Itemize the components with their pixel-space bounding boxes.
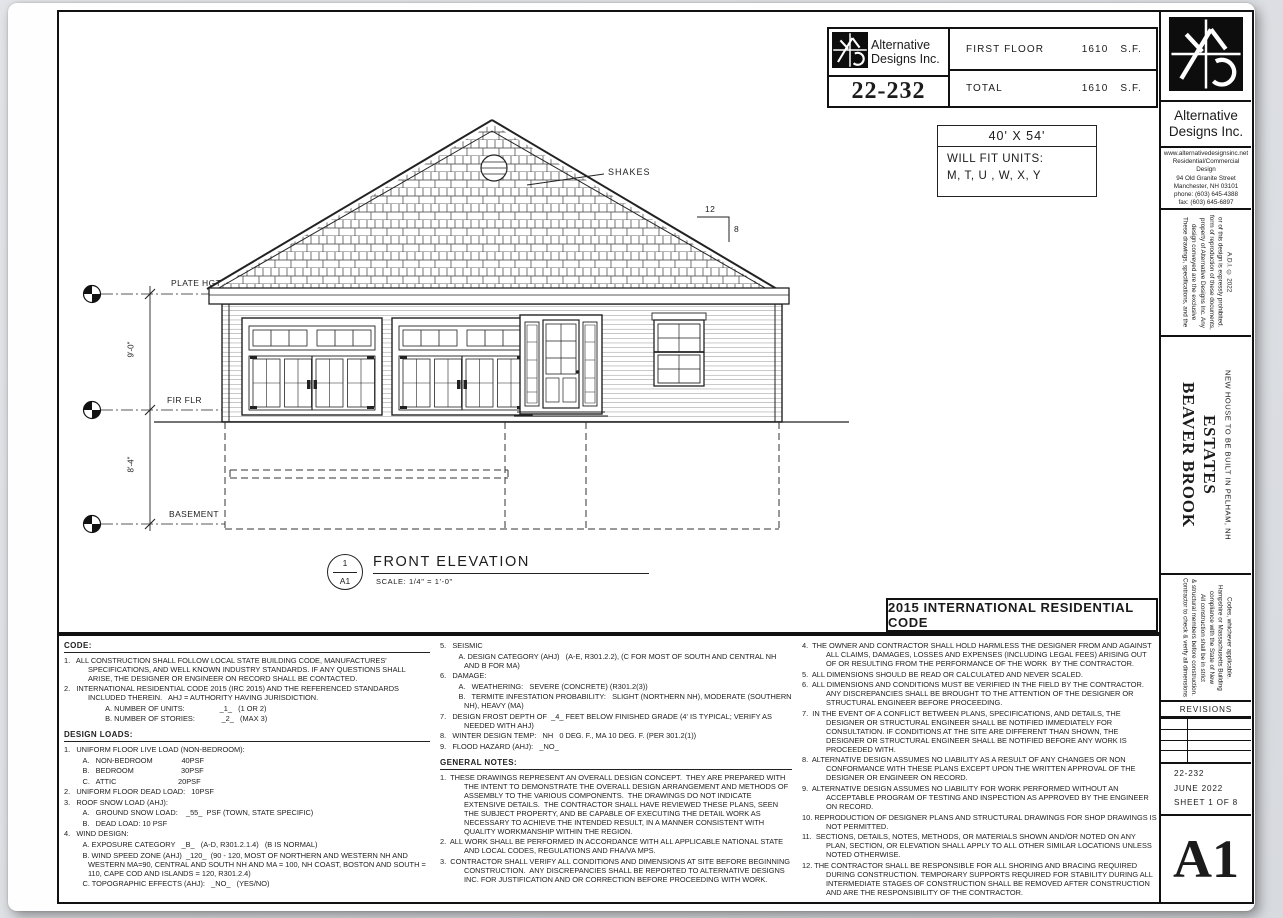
notes-column-3: 4. THE OWNER AND CONTRACTOR SHALL HOLD H… — [802, 641, 1157, 900]
datum-symbol-basement — [84, 516, 101, 533]
note-line: A. NUMBER OF UNITS: _1_ (1 OR 2) — [64, 704, 430, 713]
area-row-label: TOTAL — [966, 83, 1003, 94]
fit-units-size: 40' X 54' — [938, 126, 1096, 147]
datum-symbol-plate — [84, 286, 101, 303]
note-line: A. NON-BEDROOM 40PSF — [64, 756, 430, 765]
view-reference-bubble: 1 A1 — [327, 554, 363, 590]
garage-door-left — [242, 318, 382, 415]
title-block: Alternative Designs Inc. 22-232 FIRST FL… — [827, 27, 1158, 108]
notes-separator — [59, 632, 1159, 636]
pitch-symbol — [697, 217, 729, 242]
note-line: 8. ALTERNATIVE DESIGN ASSUMES NO LIABILI… — [802, 755, 1157, 782]
note-line: 11. SECTIONS, DETAILS, NOTES, METHODS, O… — [802, 832, 1157, 859]
project-title: BEAVER BROOK ESTATES — [1178, 340, 1221, 570]
note-line: A. WEATHERING: SEVERE (CONCRETE) (R301.2… — [440, 682, 792, 691]
revision-cell — [1188, 751, 1251, 762]
title-block-brand-cell: Alternative Designs Inc. 22-232 — [829, 29, 950, 106]
revision-cell — [1188, 741, 1251, 752]
view-title: FRONT ELEVATION — [373, 554, 649, 574]
company-info-line: www.alternativedesignsinc.net — [1161, 150, 1251, 158]
stamp-line: 22-232 — [1174, 767, 1238, 781]
code-items-continued: 5. SEISMIC A. DESIGN CATEGORY (AHJ) (A-E… — [440, 641, 792, 751]
note-line: 1. ALL CONSTRUCTION SHALL FOLLOW LOCAL S… — [64, 656, 430, 683]
note-line: A. DESIGN CATEGORY (AHJ) (A-E, R301.2.2)… — [440, 652, 792, 670]
design-loads-heading: DESIGN LOADS: — [64, 730, 430, 742]
note-line: 4. THE OWNER AND CONTRACTOR SHALL HOLD H… — [802, 641, 1157, 668]
design-loads-items: 1. UNIFORM FLOOR LIVE LOAD (NON-BEDROOM)… — [64, 745, 430, 888]
note-line: 10. REPRODUCTION OF DESIGNER PLANS AND S… — [802, 813, 1157, 831]
sidebar-project-title-cell: BEAVER BROOK ESTATES NEW HOUSE TO BE BUI… — [1161, 337, 1251, 575]
title-block-project-number: 22-232 — [829, 75, 948, 106]
revisions-table — [1161, 718, 1251, 764]
shakes-label: SHAKES — [608, 167, 651, 177]
notes-column-1: CODE: 1. ALL CONSTRUCTION SHALL FOLLOW L… — [64, 641, 430, 900]
basement-label: BASEMENT — [169, 509, 219, 519]
gable-vent — [481, 155, 507, 181]
note-line: 5. ALL DIMENSIONS SHOULD BE READ OR CALC… — [802, 670, 1157, 679]
note-line: 9. FLOOD HAZARD (AHJ): _NO_ — [440, 742, 792, 751]
revisions-header: REVISIONS — [1161, 702, 1251, 718]
note-line: 2. UNIFORM FLOOR DEAD LOAD: 10PSF — [64, 787, 430, 796]
notes-column-2: 5. SEISMIC A. DESIGN CATEGORY (AHJ) (A-E… — [440, 641, 792, 900]
company-info-line: phone: (603) 645-4388 — [1161, 191, 1251, 199]
area-row-value: 1610 — [1082, 44, 1109, 55]
area-row-value: 1610 — [1082, 83, 1109, 94]
note-line: B. NUMBER OF STORIES: _2_ (MAX 3) — [64, 714, 430, 723]
area-row-unit: S.F. — [1120, 44, 1142, 55]
note-line: 2. ALL WORK SHALL BE PERFORMED IN ACCORD… — [440, 837, 792, 855]
copyright-text: These drawings, specifications, and the … — [1180, 212, 1233, 333]
note-line: 1. THESE DRAWINGS REPRESENT AN OVERALL D… — [440, 773, 792, 836]
note-line: C. ATTIC 20PSF — [64, 777, 430, 786]
pitch-rise-label: 8 — [734, 224, 739, 234]
area-row-unit: S.F. — [1120, 83, 1142, 94]
notes-area: CODE: 1. ALL CONSTRUCTION SHALL FOLLOW L… — [64, 641, 1157, 900]
note-line: C. TOPOGRAPHIC EFFECTS (AHJ): _NO_ (YES/… — [64, 879, 430, 888]
code-items: 1. ALL CONSTRUCTION SHALL FOLLOW LOCAL S… — [64, 656, 430, 724]
sidebar-logo-cell — [1161, 12, 1251, 102]
note-line: A. EXPOSURE CATEGORY _B_ (A-D, R301.2.1.… — [64, 840, 430, 849]
sheet-id: A1 — [1161, 816, 1251, 902]
pitch-run-label: 12 — [705, 204, 715, 214]
garage-door-right — [392, 318, 532, 415]
code-banner: 2015 INTERNATIONAL RESIDENTIAL CODE — [886, 598, 1158, 632]
foundation-outline — [225, 422, 779, 529]
window — [652, 313, 706, 386]
view-number: 1 — [343, 555, 348, 572]
contractor-note-text: Contractor to check & verify all dimensi… — [1180, 577, 1233, 698]
sheet-stamp: 22-232JUNE 2022SHEET 1 OF 8 — [1161, 764, 1251, 816]
note-line: 4. WIND DESIGN: — [64, 829, 430, 838]
note-line: A. GROUND SNOW LOAD: _55_ PSF (TOWN, STA… — [64, 808, 430, 817]
sidebar-contractor-note: Contractor to check & verify all dimensi… — [1161, 575, 1251, 702]
area-row-label: FIRST FLOOR — [966, 44, 1044, 55]
sidebar-company-name: Alternative Designs Inc. — [1161, 102, 1251, 148]
revision-cell — [1188, 730, 1251, 741]
revision-cell — [1161, 719, 1188, 730]
company-info-line: 94 Old Granite Street — [1161, 175, 1251, 183]
note-line: 1. UNIFORM FLOOR LIVE LOAD (NON-BEDROOM)… — [64, 745, 430, 754]
note-line: 3. CONTRACTOR SHALL VERIFY ALL CONDITION… — [440, 857, 792, 884]
dimension-upper: 9'-0" — [126, 342, 135, 358]
company-info-line: Design — [1161, 166, 1251, 174]
title-block-area-table: FIRST FLOOR 1610 S.F. TOTAL 1610 S.F. — [950, 29, 1156, 106]
sheet-frame: PLATE HGT FIR FLR BASEMENT 9'-0" 8'-4" S… — [57, 10, 1254, 904]
datum-symbol-first-floor — [84, 402, 101, 419]
view-sheet-ref: A1 — [333, 572, 357, 590]
company-info-line: Residential/Commercial — [1161, 158, 1251, 166]
general-notes-items: 1. THESE DRAWINGS REPRESENT AN OVERALL D… — [440, 773, 792, 884]
revision-cell — [1161, 741, 1188, 752]
title-block-company-name: Alternative Designs Inc. — [871, 38, 940, 66]
note-line: 8. WINTER DESIGN TEMP: NH 0 DEG. F., MA … — [440, 731, 792, 740]
note-line: B. BEDROOM 30PSF — [64, 766, 430, 775]
note-line: B. TERMITE INFESTATION PROBABILITY: SLIG… — [440, 692, 792, 710]
note-line: 9. ALTERNATIVE DESIGN ASSUMES NO LIABILI… — [802, 784, 1157, 811]
stamp-line: JUNE 2022 — [1174, 782, 1238, 796]
note-line: 5. SEISMIC — [440, 641, 792, 650]
area-row: TOTAL 1610 S.F. — [950, 71, 1156, 106]
first-floor-label: FIR FLR — [167, 395, 202, 405]
area-row: FIRST FLOOR 1610 S.F. — [950, 29, 1156, 71]
stamp-line: SHEET 1 OF 8 — [1174, 796, 1238, 810]
company-info-line: fax: (603) 645-6897 — [1161, 199, 1251, 207]
drawing-area: PLATE HGT FIR FLR BASEMENT 9'-0" 8'-4" S… — [59, 12, 1159, 902]
front-door — [514, 315, 608, 416]
title-strip: Alternative Designs Inc. www.alternative… — [1159, 12, 1251, 902]
dimension-lower: 8'-4" — [126, 457, 135, 473]
sidebar-copyright: These drawings, specifications, and the … — [1161, 210, 1251, 337]
level-lines — [101, 286, 225, 531]
note-line: 7. DESIGN FROST DEPTH OF _4_ FEET BELOW … — [440, 712, 792, 730]
note-line: 12. THE CONTRACTOR SHALL BE RESPONSIBLE … — [802, 861, 1157, 897]
note-line: 7. IN THE EVENT OF A CONFLICT BETWEEN PL… — [802, 709, 1157, 754]
drawing-sheet: PLATE HGT FIR FLR BASEMENT 9'-0" 8'-4" S… — [8, 3, 1255, 911]
note-line: 2. INTERNATIONAL RESIDENTIAL CODE 2015 (… — [64, 684, 430, 702]
gable-roof — [207, 120, 777, 289]
general-notes-items-continued: 4. THE OWNER AND CONTRACTOR SHALL HOLD H… — [802, 641, 1157, 897]
note-line: 6. ALL DIMENSIONS AND CONDITIONS MUST BE… — [802, 680, 1157, 707]
code-heading: CODE: — [64, 641, 430, 653]
project-subtitle: NEW HOUSE TO BE BUILT IN PELHAM, NH — [1220, 340, 1234, 570]
view-scale: SCALE: 1/4" = 1'-0" — [376, 577, 649, 586]
view-title-group: 1 A1 FRONT ELEVATION SCALE: 1/4" = 1'-0" — [327, 554, 649, 590]
fit-units-box: 40' X 54' WILL FIT UNITS: M, T, U , W, X… — [937, 125, 1097, 197]
fit-units-line2: M, T, U , W, X, Y — [947, 168, 1096, 185]
note-line: B. WIND SPEED ZONE (AHJ) _120_ (90 - 120… — [64, 851, 430, 878]
general-notes-heading: GENERAL NOTES: — [440, 758, 792, 770]
revision-cell — [1161, 730, 1188, 741]
note-line: B. DEAD LOAD: 10 PSF — [64, 819, 430, 828]
note-line: 6. DAMAGE: — [440, 671, 792, 680]
company-info-line: Manchester, NH 03101 — [1161, 183, 1251, 191]
eave-band — [209, 288, 789, 304]
plate-height-label: PLATE HGT — [171, 278, 221, 288]
company-logo-icon — [1169, 17, 1243, 96]
revision-cell — [1188, 719, 1251, 730]
company-logo-icon — [832, 32, 868, 73]
revision-cell — [1161, 751, 1188, 762]
note-line: 3. ROOF SNOW LOAD (AHJ): — [64, 798, 430, 807]
sidebar-company-info: www.alternativedesignsinc.netResidential… — [1161, 148, 1251, 210]
fit-units-line1: WILL FIT UNITS: — [947, 151, 1096, 168]
